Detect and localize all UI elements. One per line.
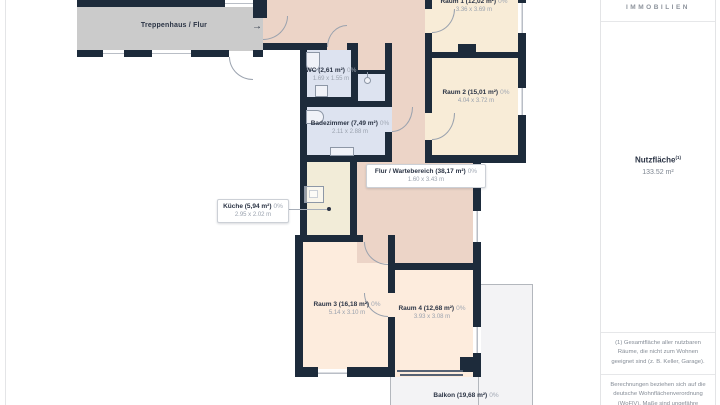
wall-segment [425, 33, 432, 52]
entry-arrow-icon: → [252, 22, 262, 32]
wall-segment [253, 50, 263, 57]
label-raum4: Raum 4 (12,68 m²)0% 3.93 x 3.08 m [372, 304, 492, 322]
wall-segment [124, 50, 152, 57]
window [152, 50, 191, 57]
label-raum2: Raum 2 (15,01 m²)0% 4.04 x 3.72 m [416, 88, 536, 106]
bath-sink-icon [330, 147, 354, 156]
label-raum1: Raum 1 (12,02 m²)0% 3.36 x 3.69 m [414, 0, 534, 15]
wall-segment [300, 155, 392, 162]
wall-segment [518, 33, 526, 88]
callout-flur: Flur / Wartebereich (38,17 m²)0% 1.60 x … [366, 164, 486, 188]
wall-segment [388, 317, 395, 377]
door-swing-arc [229, 57, 253, 80]
floorplan-page: Treppenhaus / Flur → Raum 1 (12,02 m²)0%… [0, 0, 720, 405]
metric-footnote-ref: (1) [675, 155, 681, 160]
wall-segment [77, 0, 225, 7]
wall-segment [347, 43, 358, 50]
wall-segment [425, 52, 526, 58]
sink-icon [315, 85, 328, 97]
wall-segment [425, 140, 432, 155]
label-wc: WC (2,61 m²)0% 1.69 x 1.55 m [299, 66, 363, 84]
wall-segment [473, 353, 481, 377]
room-raum2 [425, 58, 518, 155]
callout-kueche: Küche (5,94 m²)0% 2.95 x 2.02 m [217, 199, 289, 223]
footnote-1: (1) Gesamtfläche aller nutzbaren Räume, … [601, 339, 715, 367]
window [473, 327, 481, 353]
kueche-leader-dot [327, 207, 331, 211]
label-treppenhaus: Treppenhaus / Flur [104, 22, 244, 29]
label-badezimmer: Badezimmer (7,49 m²)0% 2.11 x 2.88 m [290, 119, 410, 137]
metric-label: Nutzfläche(1) [601, 155, 715, 165]
wall-segment [263, 43, 327, 50]
wall-segment [390, 263, 473, 270]
sliding-door [400, 374, 463, 376]
wall-segment [300, 97, 357, 103]
kitchen-sink-icon [304, 186, 324, 203]
footnote-2: Berechnungen beziehen sich auf die deuts… [601, 381, 715, 405]
sidebar-divider [601, 21, 715, 22]
window [318, 369, 347, 377]
label-balkon: Balkon (19,68 m²)0% [403, 391, 529, 400]
sidebar-divider [601, 374, 715, 375]
metric-value: 133.52 m² [601, 169, 715, 176]
wall-segment [385, 43, 392, 107]
balcony-area [478, 284, 533, 405]
wall-segment [388, 235, 395, 242]
branding-sidebar: IMMOBILIEN Nutzfläche(1) 133.52 m² (1) G… [600, 0, 716, 405]
wall-segment [77, 50, 103, 57]
shower-head-icon [364, 77, 371, 84]
wall-segment [425, 155, 526, 163]
window [103, 50, 124, 57]
sliding-door [397, 370, 463, 372]
wall-segment [350, 162, 357, 240]
wall-segment [458, 44, 476, 52]
wall-segment [518, 115, 526, 155]
window [225, 0, 253, 7]
wall-segment [191, 50, 229, 57]
brand-wordmark: IMMOBILIEN [601, 4, 715, 11]
sidebar-divider [601, 332, 715, 333]
window [473, 211, 481, 242]
kueche-leader-line [285, 209, 327, 210]
